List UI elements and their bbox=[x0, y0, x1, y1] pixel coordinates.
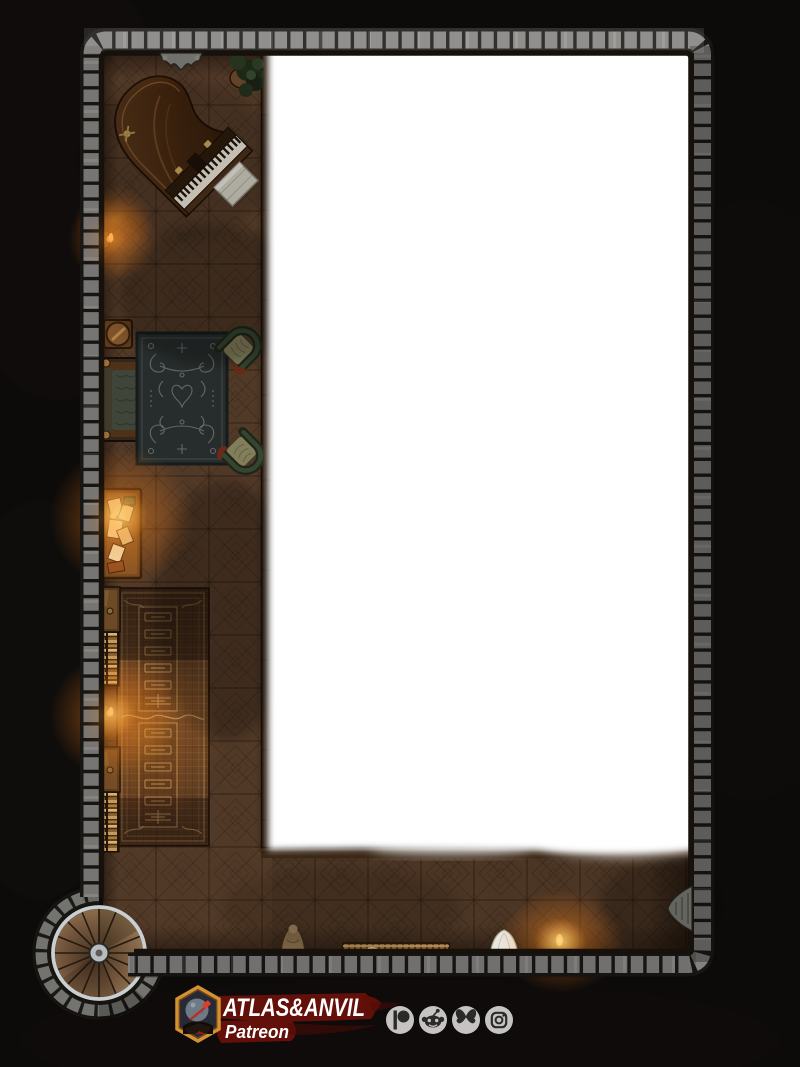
svg-text:ATLAS&ANVIL: ATLAS&ANVIL bbox=[222, 994, 365, 1022]
svg-text:Patreon: Patreon bbox=[225, 1021, 289, 1042]
